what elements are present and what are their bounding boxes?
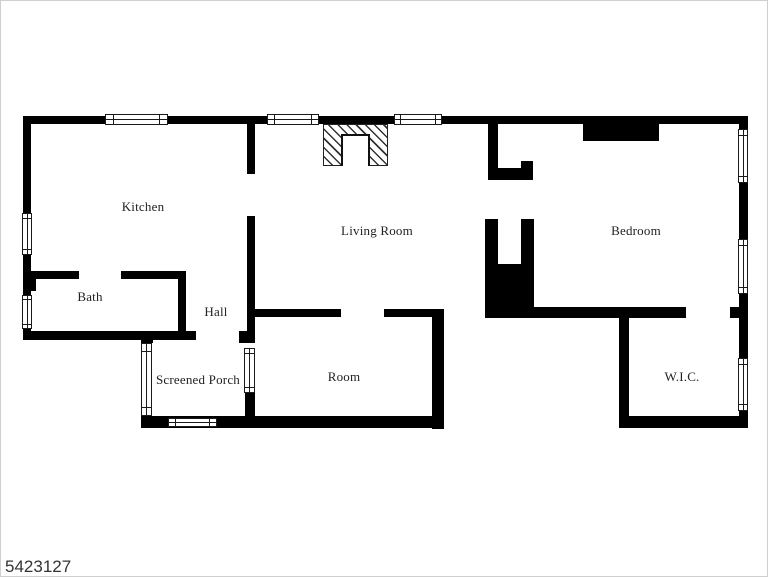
room-label-hall: Hall [204, 304, 227, 320]
window-porch-bottom [168, 418, 217, 427]
window-bedroom-right-1 [738, 129, 748, 183]
room-label-wic: W.I.C. [664, 369, 699, 385]
window-porch-left [141, 343, 152, 416]
room-label-bedroom: Bedroom [611, 223, 661, 239]
window-bath-left [22, 295, 32, 329]
listing-id: 5423127 [5, 557, 71, 577]
room-label-living-room: Living Room [341, 223, 413, 239]
firebox-icon [341, 134, 370, 166]
wall-bath-right [178, 271, 186, 333]
room-label-bath: Bath [77, 289, 102, 305]
wall-core-stub [521, 161, 533, 171]
window-kitchen-left [22, 213, 32, 255]
staircase-block [485, 264, 534, 318]
wall-wic-bottom [619, 416, 748, 428]
room-label-screened-porch: Screened Porch [156, 372, 240, 388]
window-porch-right [244, 348, 255, 393]
window-bedroom-right-2 [738, 239, 748, 294]
wall-divider-lower [247, 216, 255, 331]
wall-wic-left [619, 307, 629, 424]
stair-wall-left [485, 219, 498, 264]
window-kitchen-top [105, 114, 168, 125]
wall-livingroom-bottom-left [255, 309, 341, 317]
wall-bath-left-jog [23, 279, 36, 291]
wall-divider-foot [239, 331, 255, 343]
floor-plan: Kitchen Living Room Bedroom Bath Hall Sc… [0, 0, 768, 577]
room-label-room: Room [328, 369, 361, 385]
wall-bath-top-left [31, 271, 79, 279]
window-wic-right [738, 358, 748, 411]
wall-divider-upper [247, 116, 255, 174]
wall-bottom-left-outer [23, 331, 196, 340]
window-livingroom-left [267, 114, 319, 125]
wall-porch-left-stub [141, 331, 153, 343]
wall-bedroom-bottom-piece [730, 307, 739, 318]
wall-bath-top-right [121, 271, 186, 279]
bedroom-builtin-closet [583, 123, 659, 141]
wall-bedroom-bottom [534, 307, 686, 318]
window-livingroom-right [394, 114, 442, 125]
wall-room-right [432, 309, 444, 429]
room-label-kitchen: Kitchen [122, 199, 165, 215]
stair-wall-right [521, 219, 534, 264]
